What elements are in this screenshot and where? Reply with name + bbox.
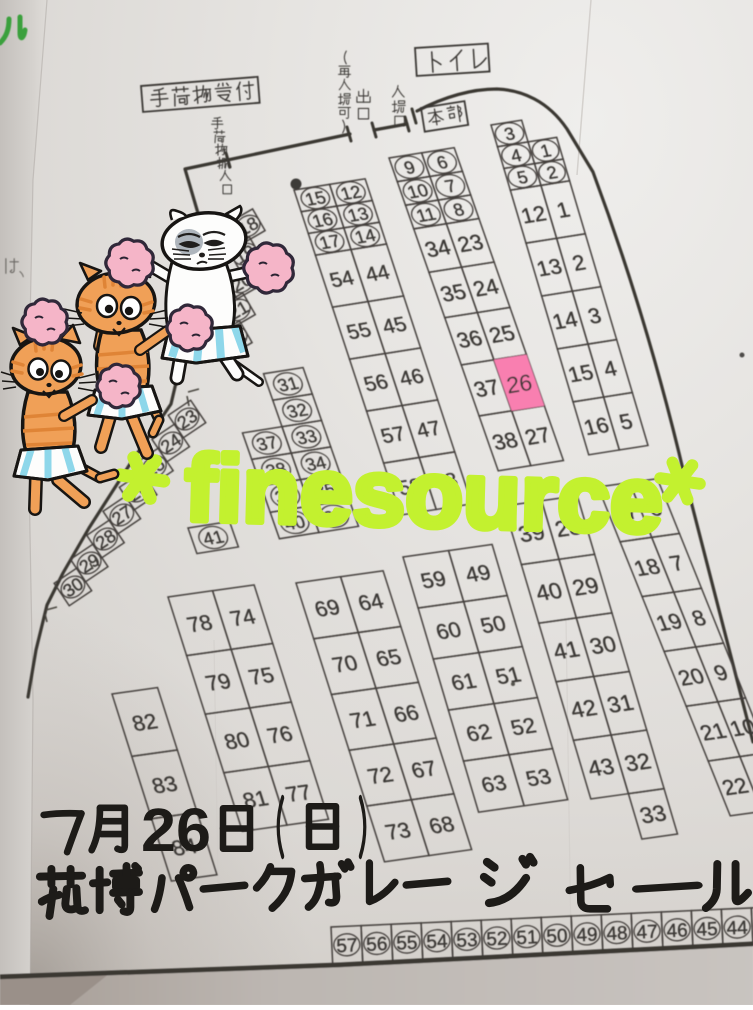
svg-text:53: 53 — [456, 930, 478, 952]
svg-text:49: 49 — [576, 924, 598, 946]
svg-text:50: 50 — [546, 926, 568, 948]
svg-text:44: 44 — [726, 918, 748, 940]
svg-text:46: 46 — [666, 920, 688, 942]
svg-text:54: 54 — [426, 931, 448, 953]
svg-text:45: 45 — [696, 919, 718, 941]
svg-text:56: 56 — [366, 934, 388, 956]
svg-text:55: 55 — [396, 933, 418, 955]
svg-text:47: 47 — [636, 922, 658, 944]
svg-text:48: 48 — [606, 923, 628, 945]
svg-text:26: 26 — [505, 369, 534, 399]
svg-text:51: 51 — [516, 927, 538, 949]
svg-text:finesource: finesource — [184, 435, 665, 552]
svg-text:57: 57 — [336, 935, 358, 957]
svg-text:26: 26 — [141, 796, 211, 864]
svg-text:52: 52 — [486, 929, 508, 951]
